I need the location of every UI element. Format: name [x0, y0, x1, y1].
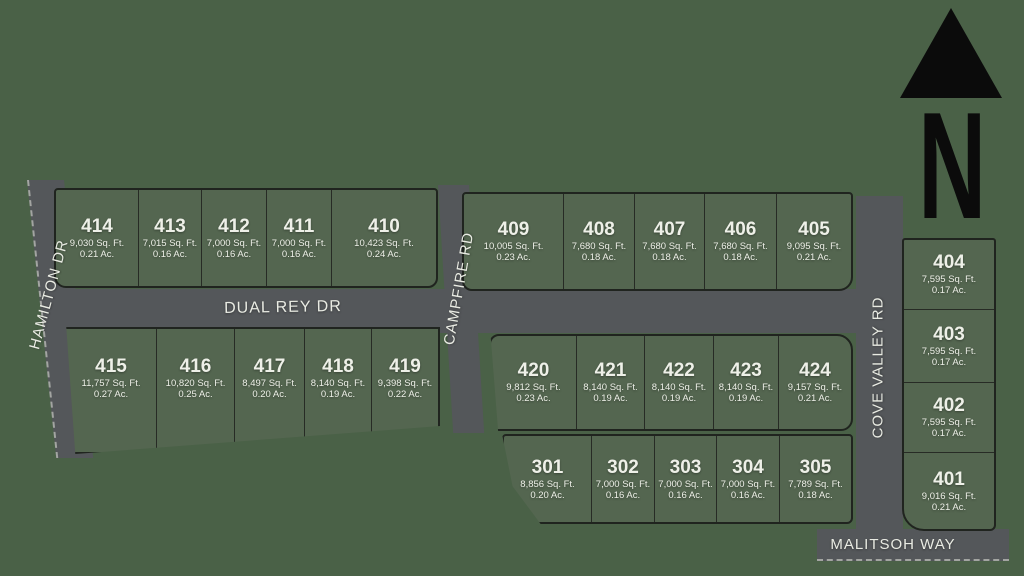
lot-302[interactable]: 302 7,000 Sq. Ft. 0.16 Ac. — [592, 436, 655, 522]
street-label-dual-rey-dr: DUAL REY DR — [183, 297, 383, 318]
lot-sqft: 10,423 Sq. Ft. — [354, 238, 414, 249]
lot-301[interactable]: 301 8,856 Sq. Ft. 0.20 Ac. — [504, 436, 592, 522]
lot-sqft: 7,680 Sq. Ft. — [713, 241, 767, 252]
lot-number: 302 — [607, 457, 639, 479]
lot-number: 305 — [800, 457, 832, 479]
lot-422[interactable]: 422 8,140 Sq. Ft. 0.19 Ac. — [645, 336, 714, 429]
lot-sqft: 7,000 Sq. Ft. — [596, 479, 650, 490]
lot-sqft: 7,015 Sq. Ft. — [143, 238, 197, 249]
lot-acres: 0.20 Ac. — [530, 490, 564, 501]
lot-acres: 0.20 Ac. — [252, 389, 286, 400]
street-label-malitsoh-way: MALITSOH WAY — [807, 536, 979, 553]
block-mid-right: 420 9,812 Sq. Ft. 0.23 Ac. 421 8,140 Sq.… — [489, 334, 853, 431]
lot-acres: 0.16 Ac. — [668, 490, 702, 501]
lot-403[interactable]: 403 7,595 Sq. Ft. 0.17 Ac. — [904, 310, 994, 383]
lot-409[interactable]: 409 10,005 Sq. Ft. 0.23 Ac. — [464, 194, 564, 289]
lot-sqft: 8,140 Sq. Ft. — [583, 382, 637, 393]
lot-number: 410 — [368, 216, 400, 238]
lot-sqft: 7,000 Sq. Ft. — [207, 238, 261, 249]
lot-number: 404 — [933, 252, 965, 274]
lot-421[interactable]: 421 8,140 Sq. Ft. 0.19 Ac. — [577, 336, 645, 429]
lot-acres: 0.21 Ac. — [798, 393, 832, 404]
lot-number: 418 — [322, 356, 354, 378]
lot-acres: 0.18 Ac. — [582, 252, 616, 263]
lot-420[interactable]: 420 9,812 Sq. Ft. 0.23 Ac. — [491, 336, 577, 429]
lot-sqft: 9,095 Sq. Ft. — [787, 241, 841, 252]
lot-number: 402 — [933, 395, 965, 417]
block-top-left: 414 9,030 Sq. Ft. 0.21 Ac. 413 7,015 Sq.… — [54, 188, 438, 288]
lot-acres: 0.16 Ac. — [731, 490, 765, 501]
lot-number: 301 — [532, 457, 564, 479]
lot-sqft: 9,812 Sq. Ft. — [506, 382, 560, 393]
lot-sqft: 7,000 Sq. Ft. — [272, 238, 326, 249]
lot-418[interactable]: 418 8,140 Sq. Ft. 0.19 Ac. — [305, 329, 372, 452]
lot-number: 406 — [725, 219, 757, 241]
lot-sqft: 7,595 Sq. Ft. — [922, 274, 976, 285]
lot-number: 408 — [583, 219, 615, 241]
lot-sqft: 7,595 Sq. Ft. — [922, 417, 976, 428]
lot-411[interactable]: 411 7,000 Sq. Ft. 0.16 Ac. — [267, 190, 332, 286]
lot-acres: 0.24 Ac. — [367, 249, 401, 260]
lot-acres: 0.16 Ac. — [217, 249, 251, 260]
north-label: N — [918, 104, 984, 229]
lot-408[interactable]: 408 7,680 Sq. Ft. 0.18 Ac. — [564, 194, 635, 289]
lot-number: 413 — [154, 216, 186, 238]
lot-number: 414 — [81, 216, 113, 238]
lot-number: 419 — [389, 356, 421, 378]
lot-410[interactable]: 410 10,423 Sq. Ft. 0.24 Ac. — [332, 190, 436, 286]
lot-acres: 0.16 Ac. — [282, 249, 316, 260]
lot-sqft: 9,016 Sq. Ft. — [922, 491, 976, 502]
lot-acres: 0.21 Ac. — [797, 252, 831, 263]
lot-number: 304 — [732, 457, 764, 479]
lot-acres: 0.16 Ac. — [153, 249, 187, 260]
lot-number: 411 — [284, 216, 315, 238]
lot-acres: 0.18 Ac. — [652, 252, 686, 263]
lot-413[interactable]: 413 7,015 Sq. Ft. 0.16 Ac. — [139, 190, 202, 286]
block-top-right: 409 10,005 Sq. Ft. 0.23 Ac. 408 7,680 Sq… — [462, 192, 853, 291]
lot-acres: 0.18 Ac. — [798, 490, 832, 501]
lot-402[interactable]: 402 7,595 Sq. Ft. 0.17 Ac. — [904, 383, 994, 453]
lot-number: 420 — [518, 360, 550, 382]
lot-acres: 0.27 Ac. — [94, 389, 128, 400]
lot-acres: 0.25 Ac. — [178, 389, 212, 400]
lot-number: 417 — [254, 356, 286, 378]
lot-sqft: 9,398 Sq. Ft. — [378, 378, 432, 389]
lot-sqft: 7,000 Sq. Ft. — [658, 479, 712, 490]
lot-416[interactable]: 416 10,820 Sq. Ft. 0.25 Ac. — [157, 329, 235, 452]
lot-acres: 0.17 Ac. — [932, 285, 966, 296]
lot-number: 416 — [180, 356, 212, 378]
lot-415[interactable]: 415 11,757 Sq. Ft. 0.27 Ac. — [66, 329, 157, 452]
lot-401[interactable]: 401 9,016 Sq. Ft. 0.21 Ac. — [904, 453, 994, 529]
lot-acres: 0.16 Ac. — [606, 490, 640, 501]
lot-405[interactable]: 405 9,095 Sq. Ft. 0.21 Ac. — [777, 194, 851, 289]
lot-305[interactable]: 305 7,789 Sq. Ft. 0.18 Ac. — [780, 436, 851, 522]
block-east: 404 7,595 Sq. Ft. 0.17 Ac. 403 7,595 Sq.… — [902, 238, 996, 531]
lot-sqft: 7,000 Sq. Ft. — [721, 479, 775, 490]
lot-acres: 0.19 Ac. — [729, 393, 763, 404]
north-arrow: N — [898, 8, 1004, 229]
lot-412[interactable]: 412 7,000 Sq. Ft. 0.16 Ac. — [202, 190, 267, 286]
lot-423[interactable]: 423 8,140 Sq. Ft. 0.19 Ac. — [714, 336, 779, 429]
lot-number: 415 — [95, 356, 127, 378]
lot-407[interactable]: 407 7,680 Sq. Ft. 0.18 Ac. — [635, 194, 705, 289]
lot-303[interactable]: 303 7,000 Sq. Ft. 0.16 Ac. — [655, 436, 717, 522]
lot-acres: 0.22 Ac. — [388, 389, 422, 400]
lot-acres: 0.21 Ac. — [80, 249, 114, 260]
street-label-cove-valley-rd: COVE VALLEY RD — [870, 283, 887, 453]
lot-424[interactable]: 424 9,157 Sq. Ft. 0.21 Ac. — [779, 336, 851, 429]
lot-number: 407 — [654, 219, 686, 241]
lot-number: 424 — [799, 360, 831, 382]
plat-map: HAMILTON DR DUAL REY DR CAMPFIRE RD COVE… — [0, 0, 1024, 576]
lot-acres: 0.18 Ac. — [723, 252, 757, 263]
lot-sqft: 8,856 Sq. Ft. — [520, 479, 574, 490]
lot-number: 423 — [730, 360, 762, 382]
block-mid-left: 415 11,757 Sq. Ft. 0.27 Ac. 416 10,820 S… — [64, 327, 440, 454]
lot-419[interactable]: 419 9,398 Sq. Ft. 0.22 Ac. — [372, 329, 438, 452]
lot-sqft: 7,595 Sq. Ft. — [922, 346, 976, 357]
lot-acres: 0.21 Ac. — [932, 502, 966, 513]
lot-sqft: 10,005 Sq. Ft. — [484, 241, 544, 252]
lot-sqft: 9,030 Sq. Ft. — [70, 238, 124, 249]
lot-acres: 0.19 Ac. — [321, 389, 355, 400]
lot-sqft: 11,757 Sq. Ft. — [82, 378, 141, 389]
lot-acres: 0.17 Ac. — [932, 357, 966, 368]
lot-sqft: 7,789 Sq. Ft. — [788, 479, 842, 490]
lot-acres: 0.19 Ac. — [593, 393, 627, 404]
lot-acres: 0.17 Ac. — [932, 428, 966, 439]
lot-406[interactable]: 406 7,680 Sq. Ft. 0.18 Ac. — [705, 194, 777, 289]
lot-number: 422 — [663, 360, 695, 382]
lot-sqft: 7,680 Sq. Ft. — [642, 241, 696, 252]
lot-417[interactable]: 417 8,497 Sq. Ft. 0.20 Ac. — [235, 329, 305, 452]
lot-sqft: 9,157 Sq. Ft. — [788, 382, 842, 393]
lot-number: 401 — [933, 469, 965, 491]
lot-number: 412 — [218, 216, 250, 238]
lot-number: 421 — [595, 360, 627, 382]
lot-304[interactable]: 304 7,000 Sq. Ft. 0.16 Ac. — [717, 436, 780, 522]
lot-sqft: 8,140 Sq. Ft. — [652, 382, 706, 393]
lot-number: 403 — [933, 324, 965, 346]
lot-sqft: 8,140 Sq. Ft. — [311, 378, 365, 389]
lot-sqft: 8,140 Sq. Ft. — [719, 382, 773, 393]
lot-sqft: 8,497 Sq. Ft. — [242, 378, 296, 389]
lot-acres: 0.23 Ac. — [496, 252, 530, 263]
block-bottom: 301 8,856 Sq. Ft. 0.20 Ac. 302 7,000 Sq.… — [502, 434, 853, 524]
lot-acres: 0.19 Ac. — [662, 393, 696, 404]
lot-number: 409 — [498, 219, 530, 241]
lot-sqft: 7,680 Sq. Ft. — [572, 241, 626, 252]
lot-acres: 0.23 Ac. — [516, 393, 550, 404]
lot-sqft: 10,820 Sq. Ft. — [166, 378, 226, 389]
lot-number: 303 — [670, 457, 702, 479]
lot-number: 405 — [798, 219, 830, 241]
